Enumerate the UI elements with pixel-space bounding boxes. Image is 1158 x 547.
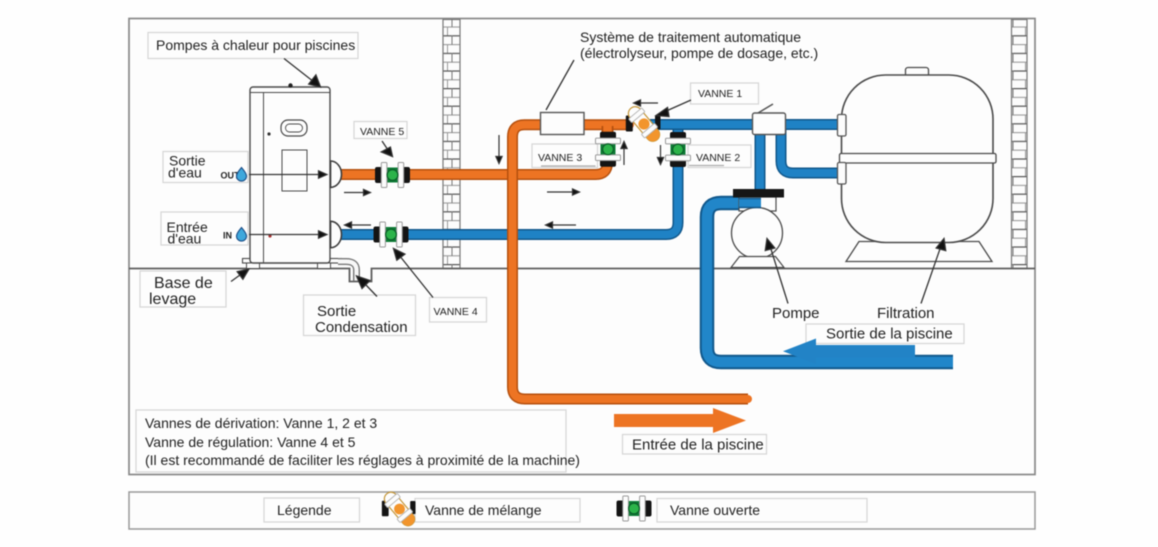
svg-text:VANNE 5: VANNE 5 xyxy=(360,126,404,138)
svg-text:d'eau: d'eau xyxy=(168,231,202,247)
svg-text:Base de: Base de xyxy=(154,275,213,292)
svg-text:Vannes de dérivation: Vanne 1,: Vannes de dérivation: Vanne 1, 2 et 3 xyxy=(145,415,377,431)
svg-text:d'eau: d'eau xyxy=(168,165,202,181)
svg-text:Pompes à chaleur pour piscines: Pompes à chaleur pour piscines xyxy=(156,37,355,53)
svg-text:Pompe: Pompe xyxy=(772,305,820,322)
svg-text:Vanne de mélange: Vanne de mélange xyxy=(425,502,542,518)
svg-text:Vanne ouverte: Vanne ouverte xyxy=(670,502,760,518)
svg-text:IN: IN xyxy=(223,231,232,241)
svg-text:VANNE 4: VANNE 4 xyxy=(434,306,478,318)
svg-text:VANNE 1: VANNE 1 xyxy=(698,88,742,100)
svg-text:VANNE 3: VANNE 3 xyxy=(538,152,582,164)
svg-text:Légende: Légende xyxy=(277,502,332,518)
svg-text:(Il est recommandé de facilite: (Il est recommandé de faciliter les régl… xyxy=(145,452,580,468)
svg-text:Système de traitement automati: Système de traitement automatique xyxy=(580,29,801,45)
svg-text:levage: levage xyxy=(149,291,196,308)
svg-text:Entrée de la piscine: Entrée de la piscine xyxy=(632,437,764,454)
svg-text:Condensation: Condensation xyxy=(315,319,408,336)
svg-text:VANNE 2: VANNE 2 xyxy=(696,152,740,164)
svg-text:(électrolyseur, pompe de dosag: (électrolyseur, pompe de dosage, etc.) xyxy=(580,45,818,61)
svg-text:Vanne de régulation: Vanne 4 e: Vanne de régulation: Vanne 4 et 5 xyxy=(145,434,356,450)
svg-text:Sortie de la piscine: Sortie de la piscine xyxy=(826,326,953,343)
svg-text:Filtration: Filtration xyxy=(877,305,935,322)
svg-text:Sortie: Sortie xyxy=(317,303,356,320)
